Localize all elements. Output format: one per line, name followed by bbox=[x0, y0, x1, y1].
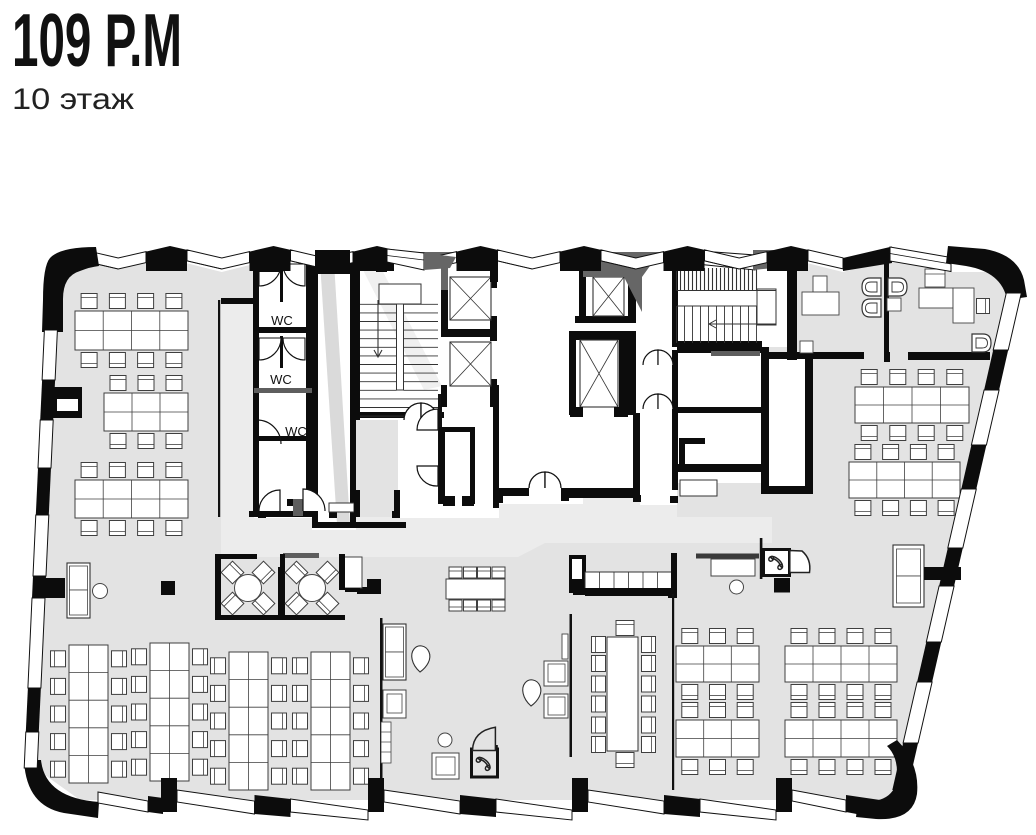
svg-text:WC: WC bbox=[271, 313, 293, 328]
svg-text:109 Р.М: 109 Р.М bbox=[12, 0, 182, 82]
svg-text:WC: WC bbox=[285, 424, 307, 439]
svg-text:WC: WC bbox=[270, 372, 292, 387]
svg-text:10 этаж: 10 этаж bbox=[12, 83, 134, 116]
